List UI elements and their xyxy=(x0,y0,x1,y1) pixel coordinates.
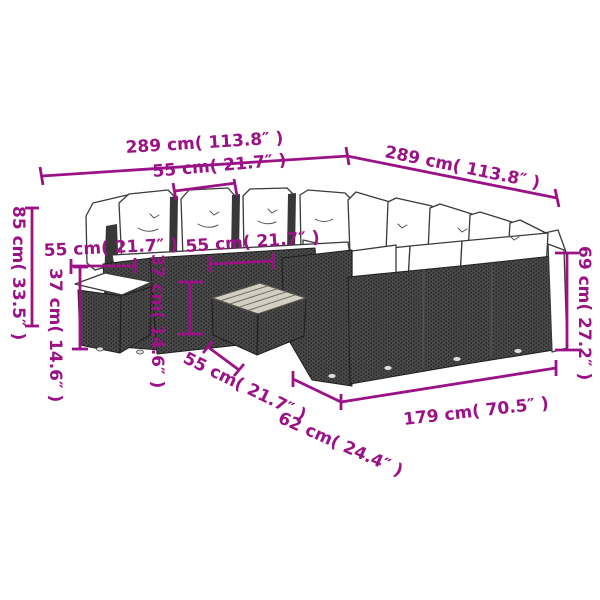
dimension-label-ottoman-height: 37 cm( 14.6″ ) xyxy=(45,268,65,402)
dimension-label-back-height-right: 69 cm( 27.2″ ) xyxy=(574,246,594,380)
rattan-bases xyxy=(103,248,554,386)
ottoman xyxy=(75,273,152,353)
right-armrest xyxy=(548,244,567,352)
dimension-label-back-height-left: 85 cm( 33.5″ ) xyxy=(8,206,28,340)
dimension-label-seat-depth: 62 cm( 24.4″ ) xyxy=(275,408,406,481)
dimension-label-sofa-length: 179 cm( 70.5″ ) xyxy=(402,394,549,430)
product-dimension-diagram: 289 cm( 113.8″ ) 289 cm( 113.8″ ) 55 cm(… xyxy=(0,0,600,600)
diagram-canvas: 289 cm( 113.8″ ) 289 cm( 113.8″ ) 55 cm(… xyxy=(0,0,600,600)
dimension-label-table-height: 37 cm( 14.6″ ) xyxy=(147,254,167,388)
right-back-panel xyxy=(348,256,554,384)
